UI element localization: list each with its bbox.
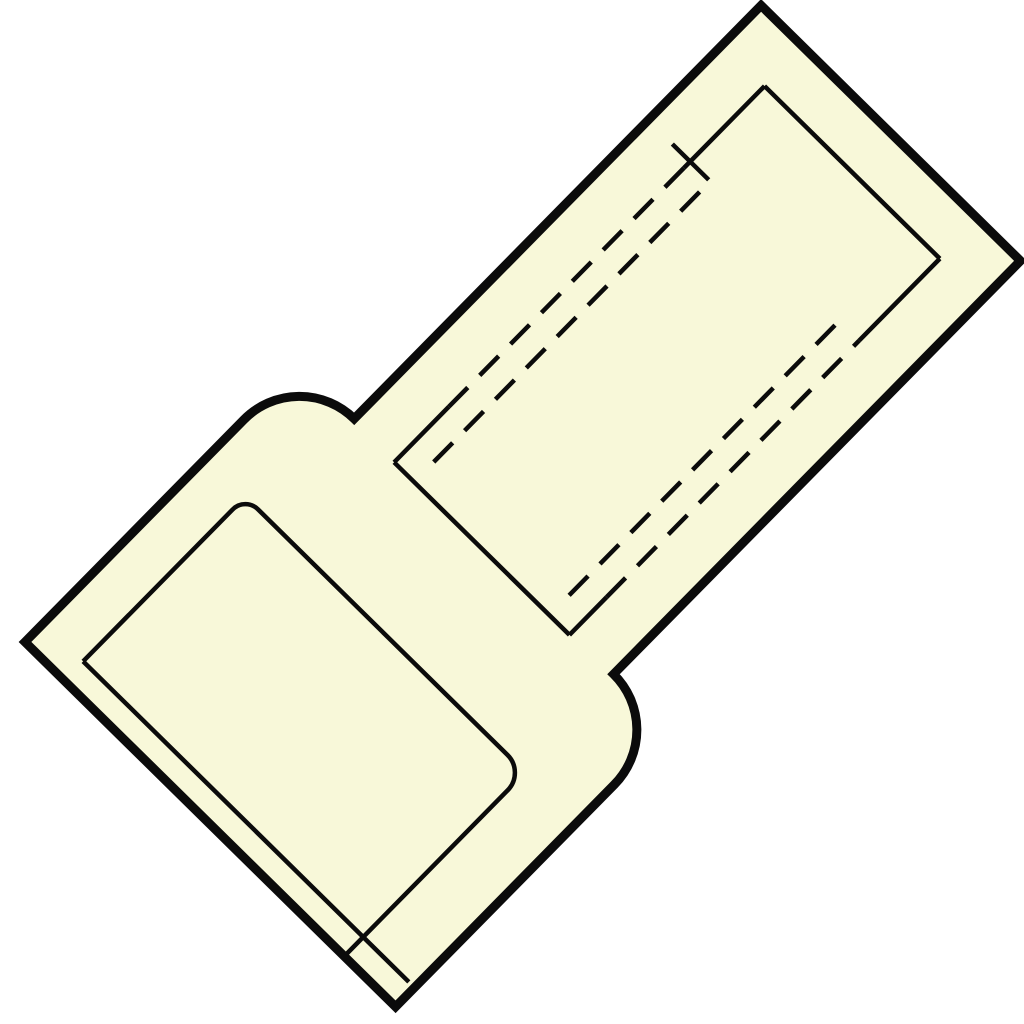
connector-rotated-group [25, 0, 1024, 1007]
connector-drawing-svg [0, 0, 1024, 1024]
connector-technical-drawing [0, 0, 1024, 1024]
page [0, 0, 1024, 1024]
connector-body-outline [25, 0, 1024, 1007]
